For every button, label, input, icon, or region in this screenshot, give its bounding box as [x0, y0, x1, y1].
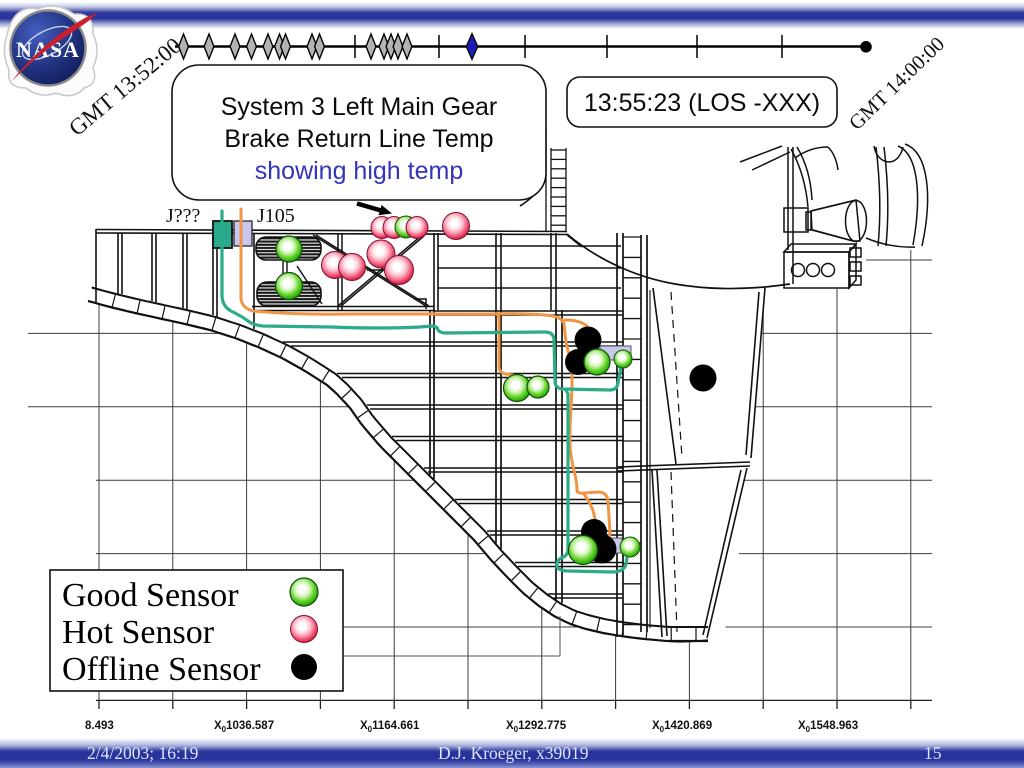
- svg-text:8.493: 8.493: [85, 720, 114, 732]
- svg-text:Hot Sensor: Hot Sensor: [62, 614, 215, 651]
- svg-text:NASA: NASA: [16, 37, 80, 62]
- svg-text:Good Sensor: Good Sensor: [62, 577, 239, 614]
- svg-text:J105: J105: [257, 205, 295, 227]
- svg-text:13:55:23 (LOS -XXX): 13:55:23 (LOS -XXX): [584, 89, 820, 117]
- svg-text:Brake Return Line Temp: Brake Return Line Temp: [224, 125, 493, 153]
- svg-text:15: 15: [924, 743, 942, 763]
- svg-text:System 3 Left Main Gear: System 3 Left Main Gear: [221, 93, 498, 121]
- svg-text:D.J. Kroeger, x39019: D.J. Kroeger, x39019: [438, 743, 589, 763]
- svg-text:Offline Sensor: Offline Sensor: [62, 651, 261, 688]
- svg-text:showing high temp: showing high temp: [255, 157, 463, 185]
- svg-text:2/4/2003; 16:19: 2/4/2003; 16:19: [87, 743, 199, 763]
- svg-text:J???: J???: [166, 205, 201, 227]
